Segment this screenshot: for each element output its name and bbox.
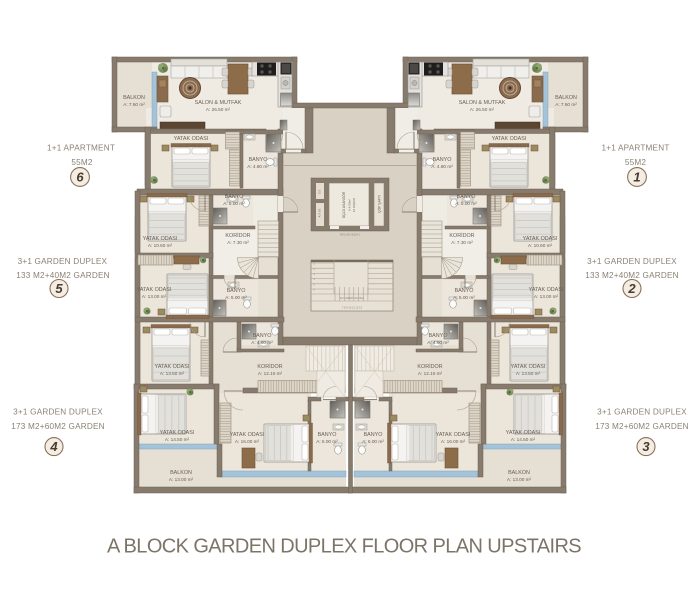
svg-text:55M2: 55M2 bbox=[71, 158, 93, 167]
svg-text:16 KİŞİLİK: 16 KİŞİLİK bbox=[351, 198, 356, 212]
svg-text:KORİDOR: KORİDOR bbox=[449, 232, 474, 239]
svg-text:BANYO: BANYO bbox=[249, 157, 268, 163]
svg-text:A: 7.30 m²: A: 7.30 m² bbox=[227, 240, 249, 245]
svg-text:133 M2+40M2 GARDEN: 133 M2+40M2 GARDEN bbox=[585, 271, 678, 280]
svg-text:3+1 GARDEN DUPLEX: 3+1 GARDEN DUPLEX bbox=[18, 257, 108, 266]
svg-text:A: 4.80 m²: A: 4.80 m² bbox=[431, 164, 453, 169]
svg-text:YATAK ODASI: YATAK ODASI bbox=[160, 430, 195, 436]
svg-text:6: 6 bbox=[76, 170, 84, 185]
svg-text:A: 11.00 m²: A: 11.00 m² bbox=[497, 143, 521, 148]
svg-text:KORİDOR: KORİDOR bbox=[417, 363, 442, 370]
svg-text:5: 5 bbox=[55, 281, 63, 296]
svg-text:YATAK ODASI: YATAK ODASI bbox=[137, 287, 172, 293]
svg-text:YATAK ODASI: YATAK ODASI bbox=[492, 136, 527, 142]
svg-text:A: 5.00 m²: A: 5.00 m² bbox=[455, 201, 477, 206]
svg-text:A: 14.50 m²: A: 14.50 m² bbox=[511, 437, 536, 442]
svg-text:BANYO: BANYO bbox=[455, 288, 474, 294]
svg-text:3+1 GARDEN DUPLEX: 3+1 GARDEN DUPLEX bbox=[587, 257, 677, 266]
svg-text:BALKON: BALKON bbox=[123, 95, 145, 101]
svg-text:A: 12.10 m²: A: 12.10 m² bbox=[418, 371, 443, 376]
svg-text:B.K.ORBAT 9H.ODA: B.K.ORBAT 9H.ODA bbox=[340, 296, 364, 300]
svg-text:A: 16.00 m²: A: 16.00 m² bbox=[441, 439, 466, 444]
svg-text:BALKON: BALKON bbox=[555, 95, 577, 101]
svg-text:BALKON: BALKON bbox=[170, 470, 192, 476]
svg-text:A: 10.60 m²: A: 10.60 m² bbox=[528, 243, 553, 248]
svg-text:1+1 APARTMENT: 1+1 APARTMENT bbox=[47, 144, 115, 153]
svg-text:A: 4.60 m²: A: 4.60 m² bbox=[427, 340, 449, 345]
svg-text:A: 5.00 m²: A: 5.00 m² bbox=[225, 295, 247, 300]
svg-text:A: 6.00 m²: A: 6.00 m² bbox=[316, 439, 338, 444]
svg-text:ÜÇLÜ ASANSÖR: ÜÇLÜ ASANSÖR bbox=[342, 191, 346, 218]
svg-text:KRŞ.ODS 00224-1: KRŞ.ODS 00224-1 bbox=[340, 234, 361, 237]
svg-text:A: 7.50 m²: A: 7.50 m² bbox=[555, 102, 577, 107]
svg-text:A: 14.50 m²: A: 14.50 m² bbox=[165, 437, 190, 442]
svg-text:A: 13.00 m²: A: 13.00 m² bbox=[507, 477, 532, 482]
svg-text:3+1 GARDEN DUPLEX: 3+1 GARDEN DUPLEX bbox=[13, 407, 103, 416]
svg-text:BANYO: BANYO bbox=[457, 194, 476, 200]
svg-text:A: 13.50 m²: A: 13.50 m² bbox=[516, 371, 541, 376]
svg-text:133 M2+40M2 GARDEN: 133 M2+40M2 GARDEN bbox=[16, 271, 109, 280]
svg-text:A: 26.50 m²: A: 26.50 m² bbox=[206, 107, 231, 112]
svg-text:YATAK ODASI: YATAK ODASI bbox=[511, 364, 546, 370]
svg-text:A: 6.00 m²: A: 6.00 m² bbox=[362, 439, 384, 444]
svg-text:YATAK ODASI: YATAK ODASI bbox=[523, 236, 558, 242]
svg-text:YATAK ODASI: YATAK ODASI bbox=[506, 430, 541, 436]
svg-text:BALKON: BALKON bbox=[508, 470, 530, 476]
svg-text:A BLOCK GARDEN DUPLEX FLOOR PL: A BLOCK GARDEN DUPLEX FLOOR PLAN UPSTAIR… bbox=[107, 536, 581, 558]
svg-text:2: 2 bbox=[627, 281, 636, 296]
svg-text:YATAK ODASI: YATAK ODASI bbox=[143, 236, 178, 242]
svg-text:BANYO: BANYO bbox=[364, 432, 383, 438]
svg-text:3+1 GARDEN DUPLEX: 3+1 GARDEN DUPLEX bbox=[597, 407, 687, 416]
svg-text:3: 3 bbox=[642, 439, 650, 454]
svg-text:A:4.50m²: A:4.50m² bbox=[348, 199, 352, 211]
svg-text:YATAK ODASI: YATAK ODASI bbox=[155, 364, 190, 370]
svg-text:7 8 9 10 11 12 13: 7 8 9 10 11 12 13 bbox=[342, 306, 363, 310]
svg-text:A: 10.60 m²: A: 10.60 m² bbox=[148, 243, 173, 248]
svg-text:ÇÖP ŞAFTI: ÇÖP ŞAFTI bbox=[378, 195, 382, 213]
svg-text:A: 26.50 m²: A: 26.50 m² bbox=[470, 107, 495, 112]
svg-text:1+1 APARTMENT: 1+1 APARTMENT bbox=[601, 144, 669, 153]
svg-text:A: 13.00 m²: A: 13.00 m² bbox=[534, 294, 559, 299]
svg-text:A: 5.00 m²: A: 5.00 m² bbox=[223, 201, 245, 206]
svg-text:BANYO: BANYO bbox=[225, 194, 244, 200]
svg-text:A: 13.00 m²: A: 13.00 m² bbox=[169, 477, 194, 482]
svg-text:A.S.V2: A.S.V2 bbox=[318, 208, 322, 217]
svg-text:A: 7.30 m²: A: 7.30 m² bbox=[451, 240, 473, 245]
svg-text:BANYO: BANYO bbox=[253, 333, 272, 339]
svg-text:A: 5.00 m²: A: 5.00 m² bbox=[453, 295, 475, 300]
svg-text:A: 13.00 m²: A: 13.00 m² bbox=[142, 294, 167, 299]
svg-text:1: 1 bbox=[633, 170, 640, 185]
svg-text:YATAK ODASI: YATAK ODASI bbox=[230, 432, 265, 438]
svg-text:BANYO: BANYO bbox=[433, 157, 452, 163]
svg-text:4: 4 bbox=[49, 439, 58, 454]
svg-text:173 M2+60M2 GARDEN: 173 M2+60M2 GARDEN bbox=[595, 422, 688, 431]
svg-text:A: 4.60 m²: A: 4.60 m² bbox=[251, 340, 273, 345]
svg-text:A: 12.10 m²: A: 12.10 m² bbox=[258, 371, 283, 376]
svg-text:YATAK ODASI: YATAK ODASI bbox=[174, 136, 209, 142]
svg-text:A: 7.50 m²: A: 7.50 m² bbox=[123, 102, 145, 107]
svg-text:BANYO: BANYO bbox=[429, 333, 448, 339]
svg-text:BANYO: BANYO bbox=[318, 432, 337, 438]
svg-text:A: 13.50 m²: A: 13.50 m² bbox=[160, 371, 185, 376]
svg-text:173 M2+60M2 GARDEN: 173 M2+60M2 GARDEN bbox=[11, 422, 104, 431]
svg-text:KORİDOR: KORİDOR bbox=[257, 363, 282, 370]
svg-text:BANYO: BANYO bbox=[227, 288, 246, 294]
svg-text:YATAK ODASI: YATAK ODASI bbox=[529, 287, 564, 293]
svg-text:SALON & MUTFAK: SALON & MUTFAK bbox=[459, 100, 506, 106]
svg-text:KORİDOR: KORİDOR bbox=[225, 232, 250, 239]
svg-text:SALON & MUTFAK: SALON & MUTFAK bbox=[195, 100, 242, 106]
svg-text:S.S: S.S bbox=[318, 190, 322, 195]
svg-text:A: 4.80 m²: A: 4.80 m² bbox=[247, 164, 269, 169]
svg-text:A: 11.00 m²: A: 11.00 m² bbox=[179, 143, 203, 148]
svg-text:A: 16.00 m²: A: 16.00 m² bbox=[235, 439, 260, 444]
svg-text:YATAK ODASI: YATAK ODASI bbox=[436, 432, 471, 438]
svg-text:55M2: 55M2 bbox=[625, 158, 647, 167]
